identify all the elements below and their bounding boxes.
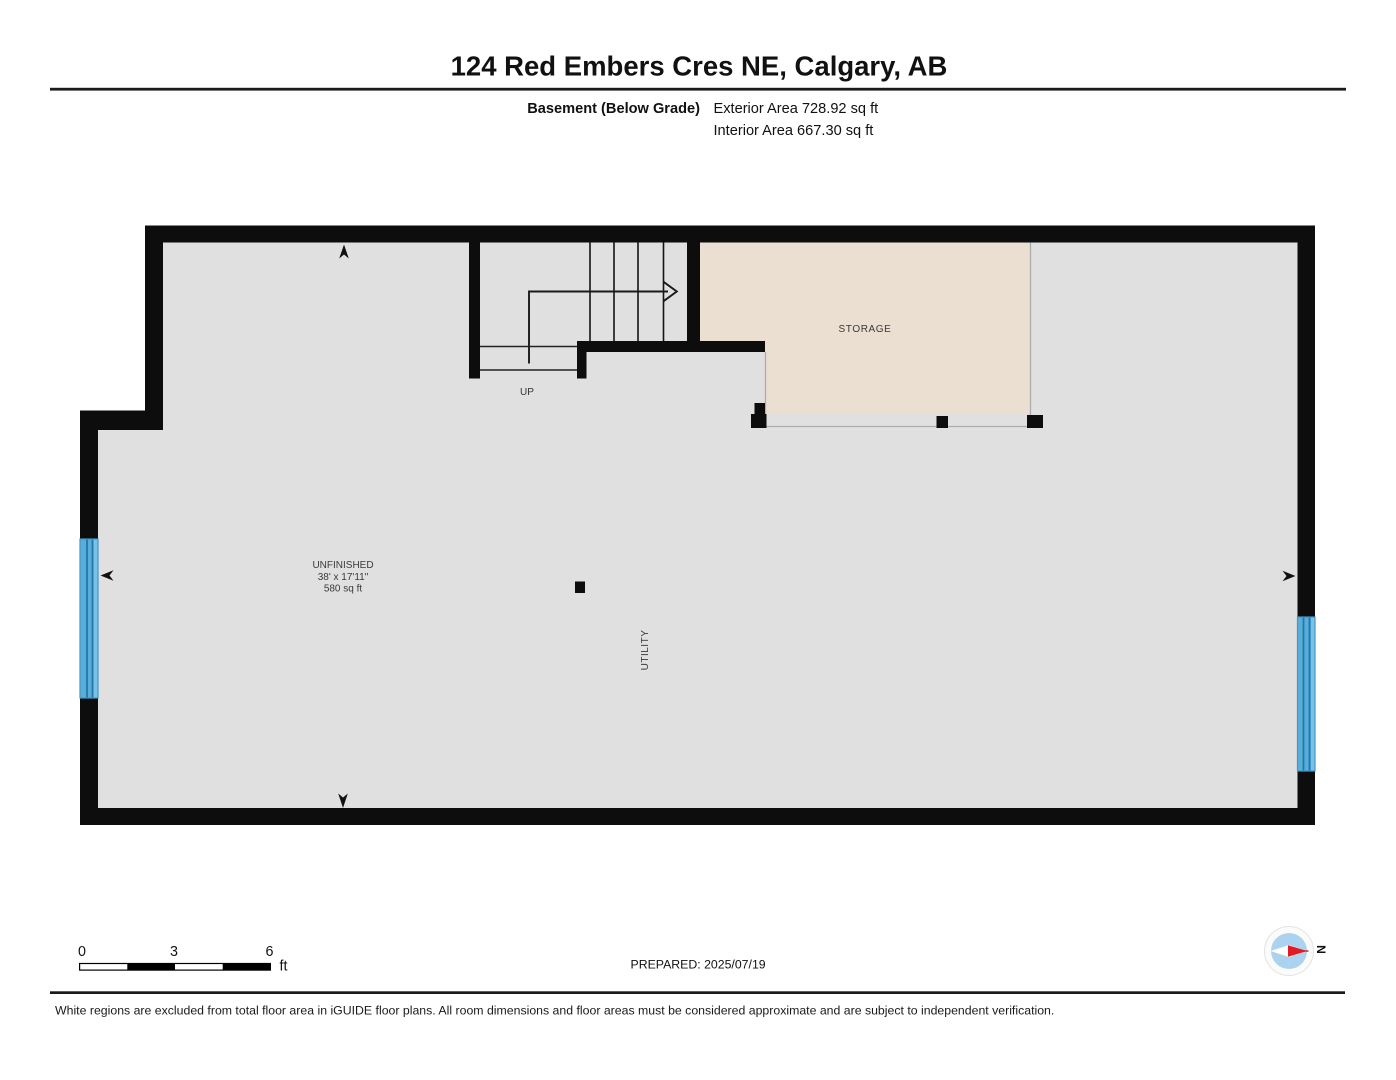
- svg-text:3: 3: [170, 944, 178, 960]
- svg-text:White regions are excluded fro: White regions are excluded from total fl…: [55, 1004, 1054, 1018]
- svg-text:UTILITY: UTILITY: [640, 630, 651, 671]
- svg-text:124 Red Embers Cres NE, Calgar: 124 Red Embers Cres NE, Calgary, AB: [451, 51, 948, 82]
- svg-text:ft: ft: [280, 959, 288, 975]
- svg-text:6: 6: [266, 944, 274, 960]
- svg-text:PREPARED: 2025/07/19: PREPARED: 2025/07/19: [631, 958, 766, 972]
- svg-text:UNFINISHED: UNFINISHED: [312, 560, 373, 571]
- svg-text:STORAGE: STORAGE: [839, 324, 892, 335]
- svg-text:38' x 17'11": 38' x 17'11": [318, 572, 369, 583]
- svg-text:Basement (Below Grade): Basement (Below Grade): [527, 101, 700, 117]
- svg-text:0: 0: [78, 944, 86, 960]
- svg-text:Exterior Area 728.92 sq ft: Exterior Area 728.92 sq ft: [714, 101, 879, 117]
- svg-text:UP: UP: [520, 387, 534, 398]
- svg-text:Interior Area 667.30 sq ft: Interior Area 667.30 sq ft: [714, 123, 874, 139]
- svg-text:580 sq ft: 580 sq ft: [324, 584, 363, 595]
- svg-text:N: N: [1314, 945, 1328, 954]
